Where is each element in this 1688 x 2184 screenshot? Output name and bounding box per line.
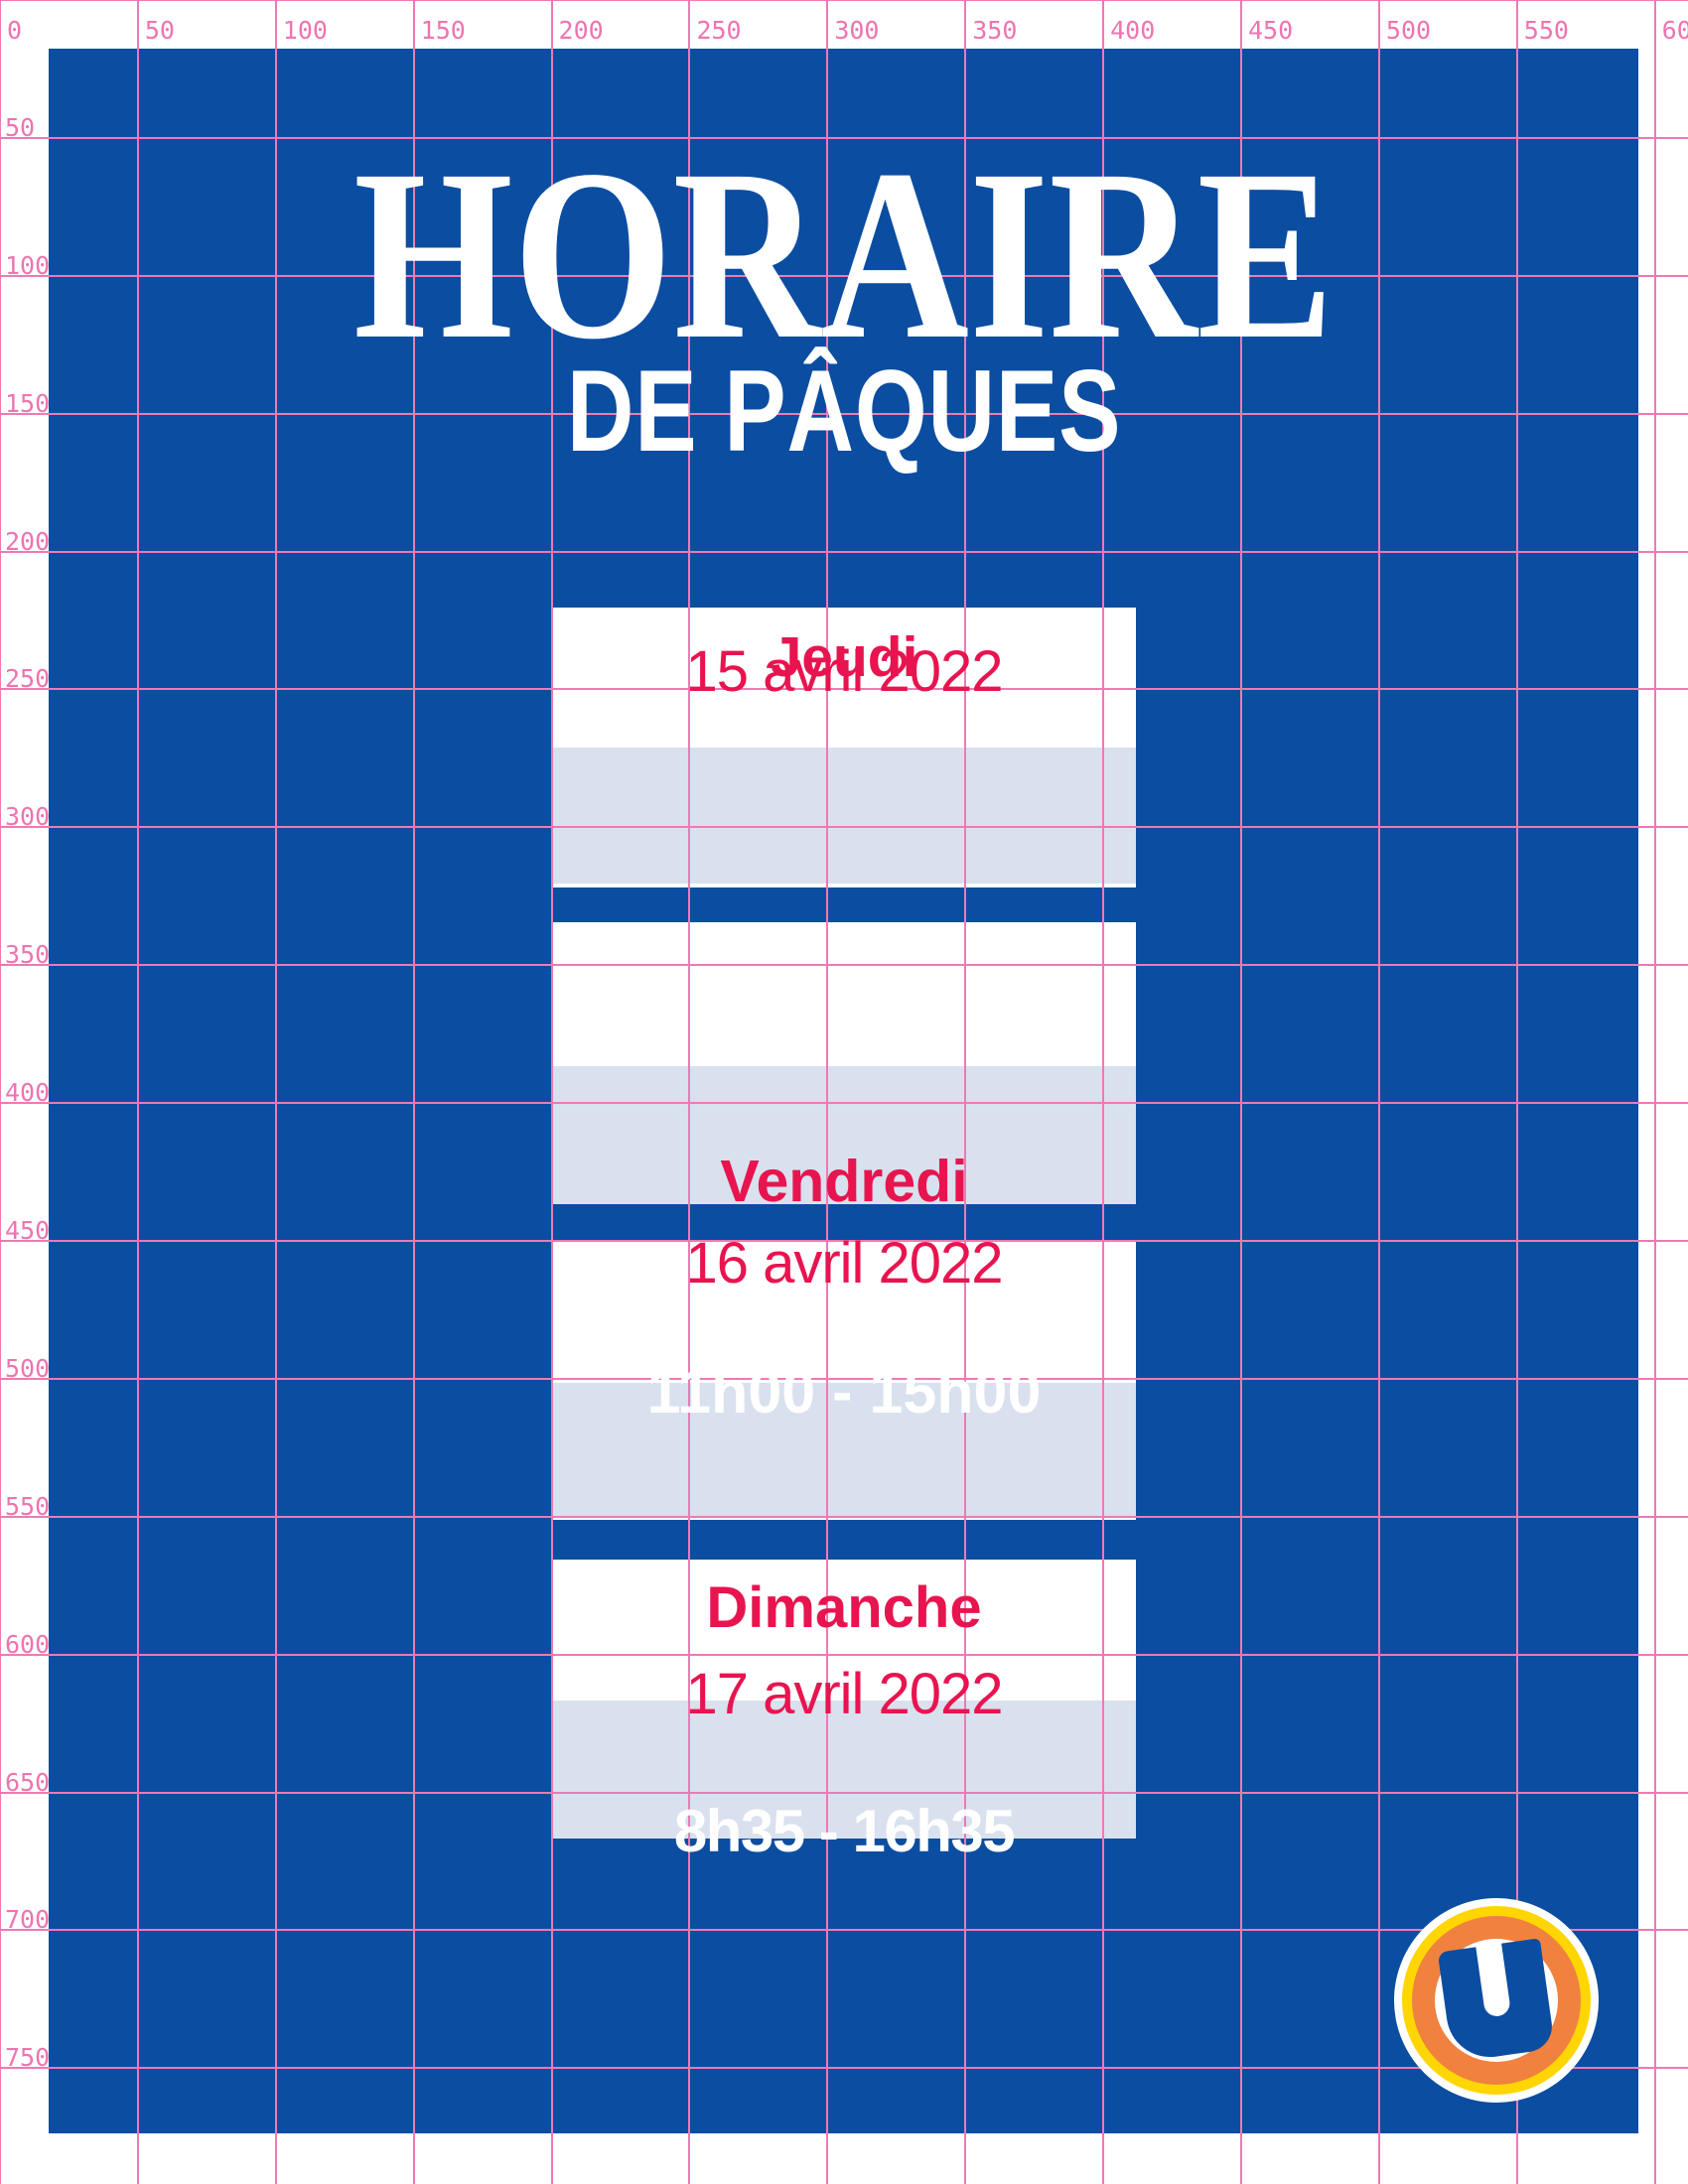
ruler-label-left: 400 [5, 1080, 50, 1105]
ruler-label-top: 550 [1524, 18, 1569, 43]
ruler-label-left: 350 [5, 942, 50, 967]
ruler-label-top: 200 [559, 18, 604, 43]
card-vendredi-white-panel [552, 922, 1136, 1066]
ruler-label-left: 300 [5, 804, 50, 829]
ruler-label-top: 300 [834, 18, 879, 43]
ruler-label-top: 600 [1662, 18, 1688, 43]
ruler-label-top: 50 [145, 18, 175, 43]
logo-u-letter-notch [1476, 1942, 1511, 2018]
day-dimanche: Dimanche [0, 1579, 1688, 1637]
ruler-label-top: 250 [696, 18, 741, 43]
ruler-label-top: 450 [1248, 18, 1293, 43]
ruler-label-left: 550 [5, 1494, 50, 1519]
ruler-label-top: 100 [283, 18, 328, 43]
ruler-label-top: 0 [7, 18, 22, 43]
hours-vendredi: 11h00 - 15h00 [0, 1362, 1688, 1423]
card-jeudi-bottom-edge [552, 884, 1136, 887]
card-vendredi2-bottom-edge [552, 1516, 1136, 1520]
hours-dimanche: 8h35 - 16h35 [0, 1802, 1688, 1861]
design-canvas: 0501001502002503003504004505005506005010… [0, 0, 1688, 2184]
day-jeudi: Jeudi [0, 629, 1688, 686]
card-jeudi-hours-band [552, 748, 1136, 884]
ruler-label-left: 200 [5, 529, 50, 554]
date-vendredi: 16 avril 2022 [0, 1235, 1688, 1293]
ruler-label-top: 400 [1110, 18, 1155, 43]
ruler-label-top: 150 [421, 18, 466, 43]
ruler-label-top: 350 [972, 18, 1017, 43]
poster-title: HORAIRE [0, 133, 1688, 377]
ruler-label-left: 700 [5, 1907, 50, 1932]
magasins-u-logo [1394, 1898, 1599, 2103]
ruler-label-left: 750 [5, 2045, 50, 2070]
ruler-label-top: 500 [1386, 18, 1431, 43]
day-vendredi: Vendredi [0, 1153, 1688, 1211]
ruler-label-left: 650 [5, 1770, 50, 1795]
grid-line-horizontal [0, 0, 1688, 1]
date-dimanche: 17 avril 2022 [0, 1666, 1688, 1723]
poster-subtitle: DE PÂQUES [0, 352, 1688, 469]
